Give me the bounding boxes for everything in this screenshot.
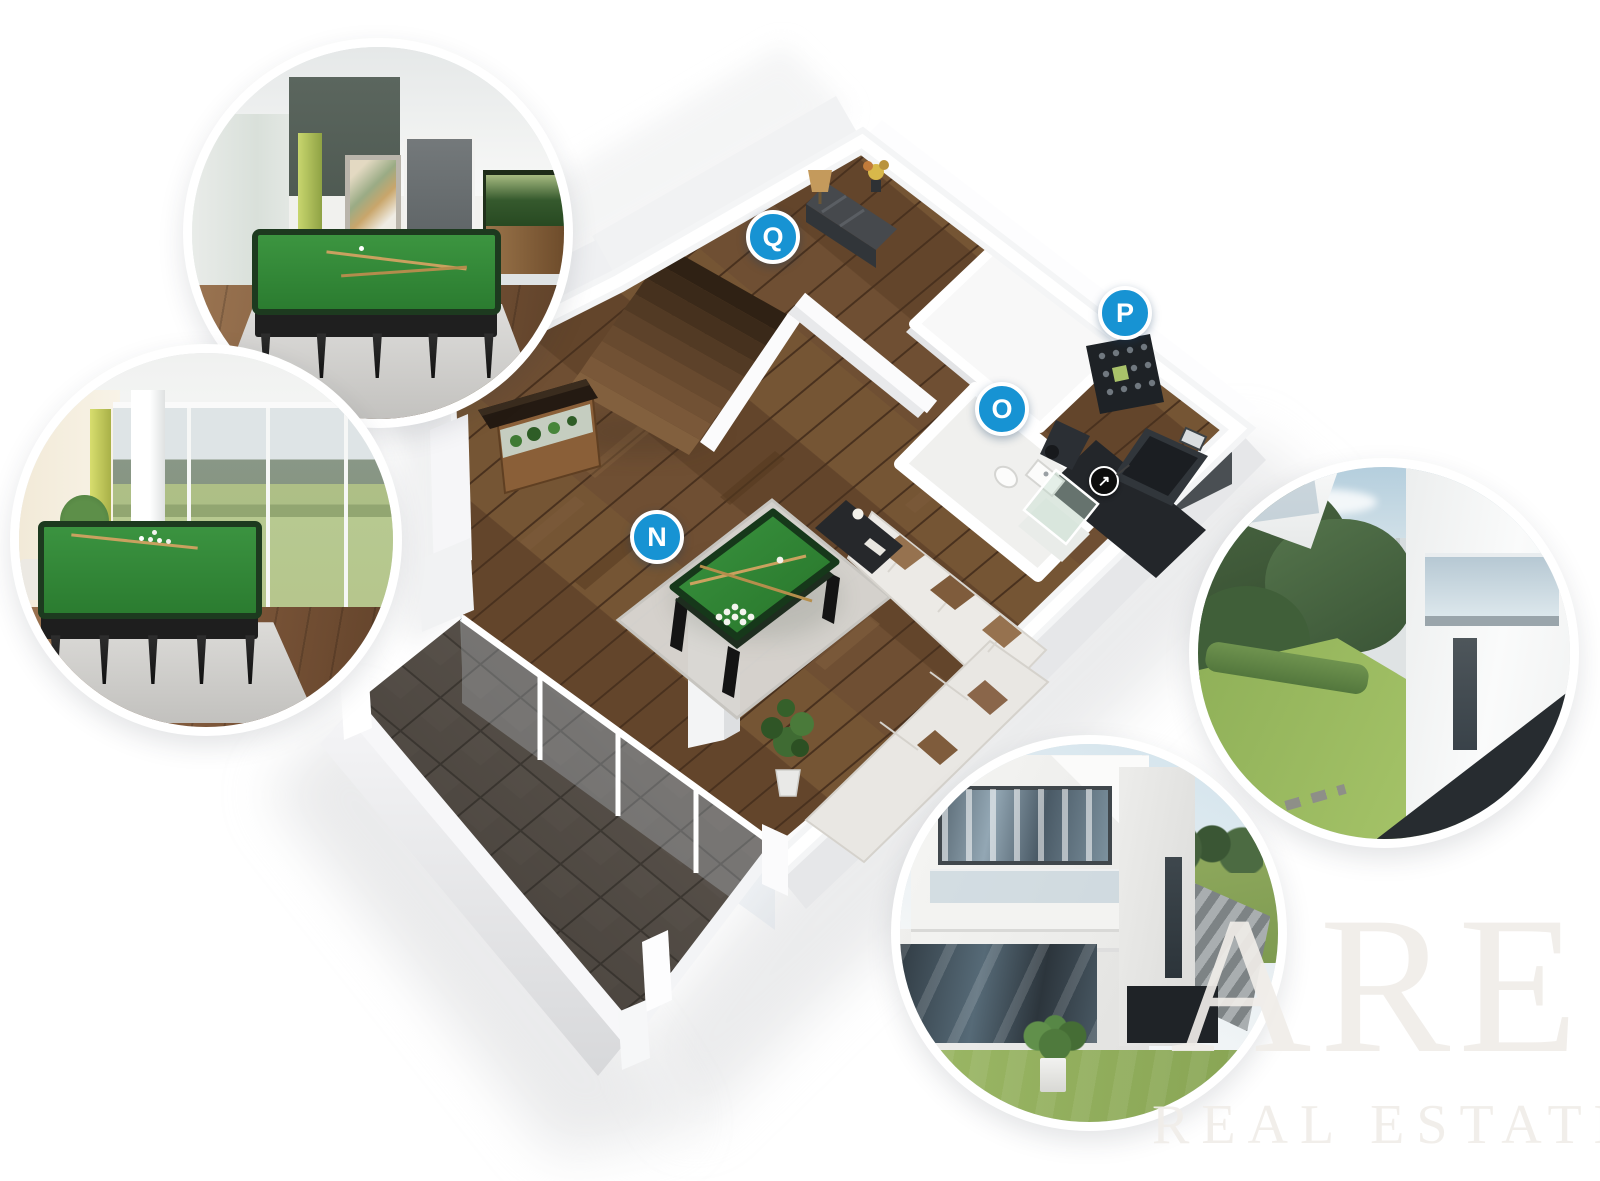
glass-balcony <box>1425 553 1559 627</box>
post <box>762 824 788 896</box>
post <box>618 1000 650 1070</box>
camera-arrow-glyph: ↗ <box>1098 472 1111 490</box>
window <box>1453 638 1477 750</box>
post <box>642 930 672 1012</box>
table-lamp <box>808 170 832 192</box>
planter-pot <box>1040 1058 1066 1092</box>
window-mullion <box>344 402 348 608</box>
floor-plan-page: ↗ N O P Q <box>0 0 1600 1181</box>
marker-Q-label: Q <box>762 224 783 251</box>
camera-viewpoint-icon[interactable]: ↗ <box>1089 466 1119 496</box>
aquarium <box>483 170 564 231</box>
marker-P-label: P <box>1116 300 1134 327</box>
marker-P[interactable]: P <box>1098 286 1152 340</box>
marker-O[interactable]: O <box>975 382 1029 436</box>
inset-photo-house-exterior <box>891 735 1287 1131</box>
slit-window <box>1165 857 1182 978</box>
billiard-table-body <box>255 311 497 337</box>
marker-N[interactable]: N <box>630 510 684 564</box>
inset-photo-billiard-room-garden <box>10 344 402 736</box>
marker-N-label: N <box>647 524 667 551</box>
garage-door <box>1127 986 1218 1043</box>
marker-O-label: O <box>991 396 1012 423</box>
marker-Q[interactable]: Q <box>746 210 800 264</box>
billiard-balls <box>139 536 144 541</box>
window-mullion <box>266 402 270 608</box>
lamp <box>853 509 864 520</box>
curtains <box>942 789 1108 861</box>
balcony-slab <box>911 903 1145 929</box>
